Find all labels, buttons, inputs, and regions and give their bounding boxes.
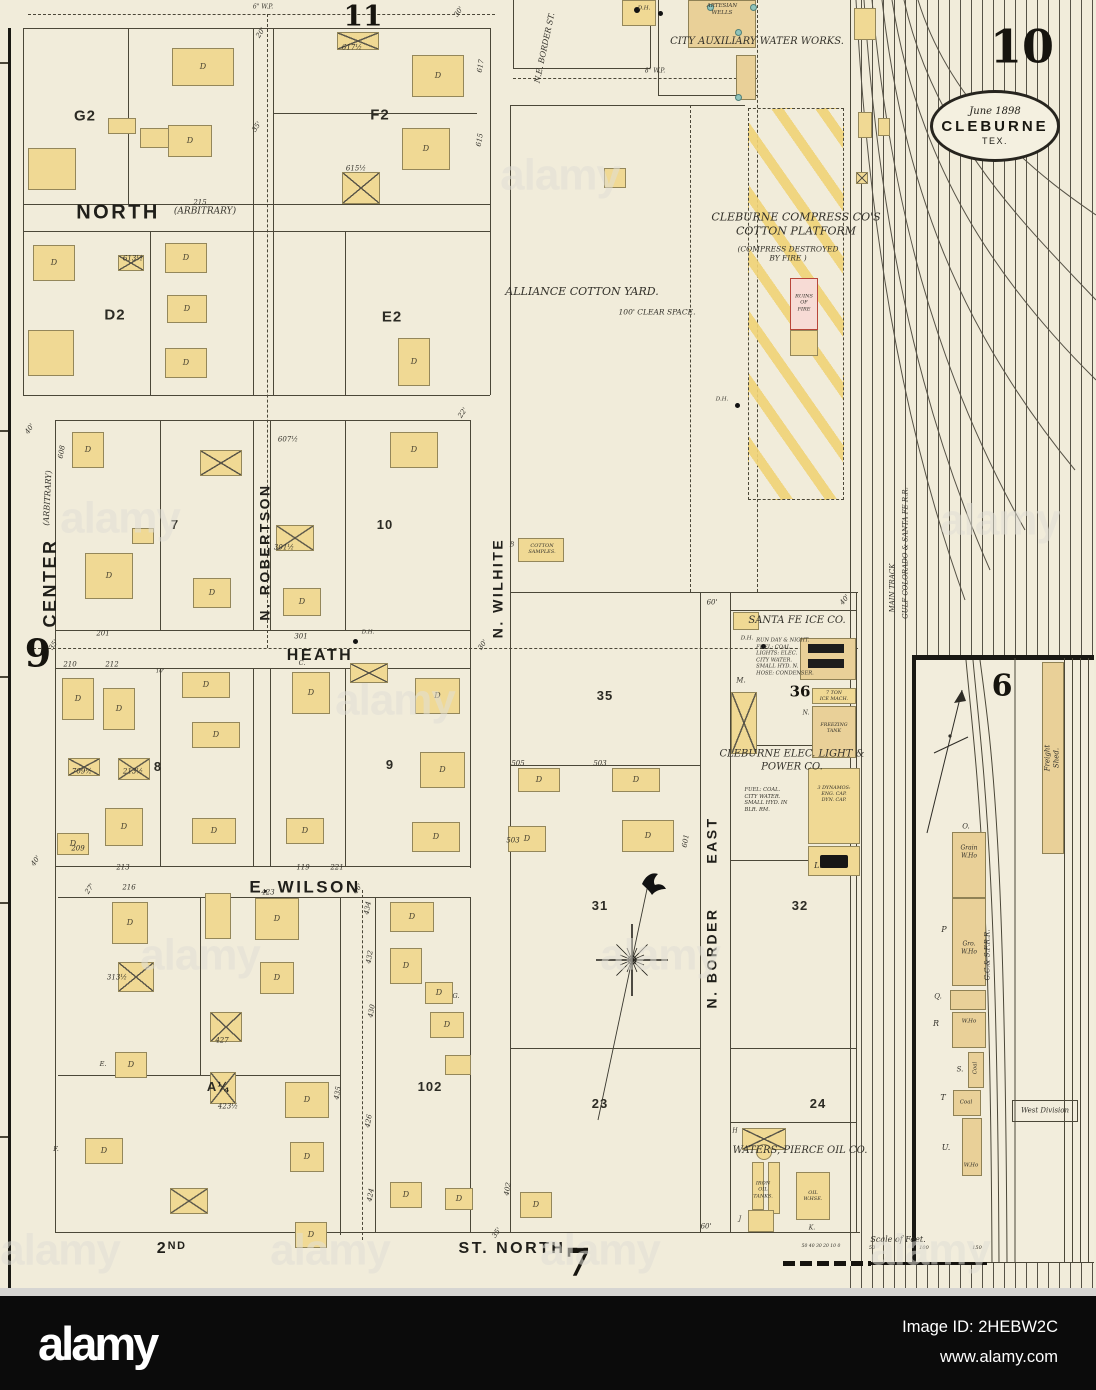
compass-rose-icon (596, 924, 668, 996)
badge-city: CLEBURNE (941, 118, 1048, 135)
flag-icon (845, 858, 854, 876)
photo-edge-strip (0, 1288, 1096, 1296)
map-title-badge: June 1898 CLEBURNE TEX. (930, 90, 1060, 162)
badge-date: June 1898 (969, 106, 1020, 117)
scale-bar-segments (783, 1261, 871, 1266)
compass-and-arrows (0, 0, 1096, 1290)
watermark-footer-bar: alamy Image ID: 2HEBW2C www.alamy.com (0, 1296, 1096, 1390)
badge-state: TEX. (982, 136, 1008, 146)
image-id: Image ID: 2HEBW2C (902, 1318, 1058, 1336)
sanborn-map-sheet: DDDDDDDDDDDDDDDDDDDDDDDDDDDDDDDDDDDDDDDD… (0, 0, 1096, 1390)
scale-bar-rule (871, 1262, 987, 1265)
scale-bar (783, 1253, 987, 1272)
north-bird-glyph (642, 873, 666, 895)
alamy-logo: alamy (38, 1316, 156, 1371)
compass-needle (598, 875, 650, 1120)
inset-north-arrow (927, 690, 968, 833)
footer-info: Image ID: 2HEBW2C www.alamy.com (902, 1313, 1058, 1372)
footer-url: www.alamy.com (940, 1348, 1058, 1366)
